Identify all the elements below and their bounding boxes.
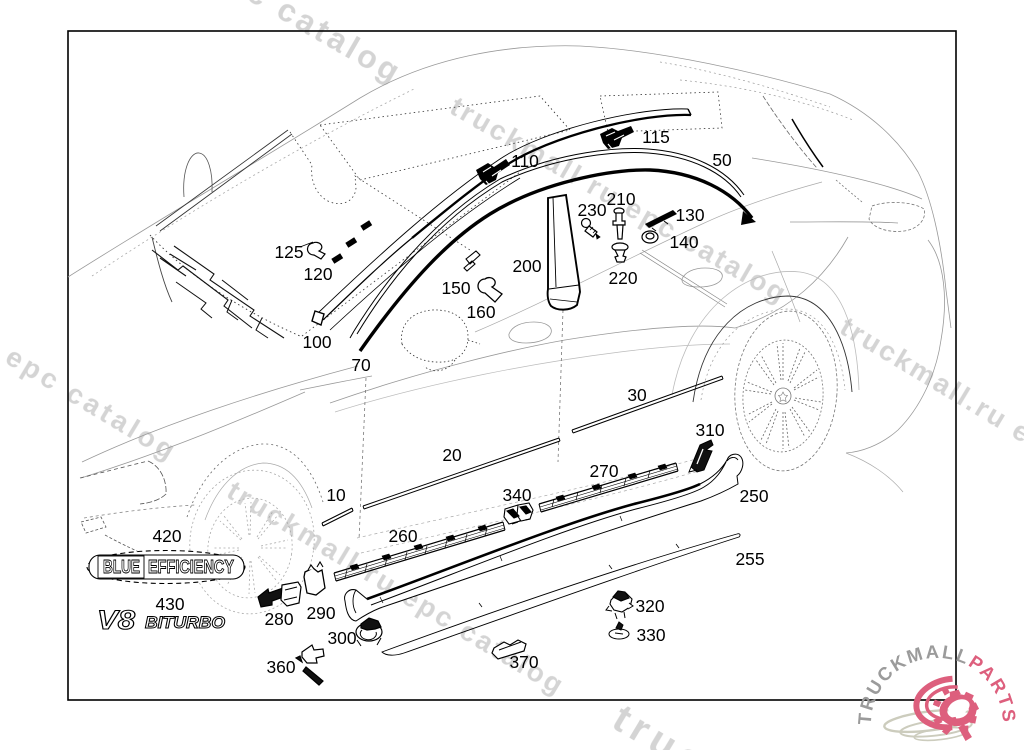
svg-text:V8: V8 [97, 605, 135, 635]
svg-text:70: 70 [351, 355, 370, 375]
svg-text:210: 210 [606, 189, 635, 209]
svg-text:340: 340 [502, 485, 531, 505]
svg-text:50: 50 [712, 150, 731, 170]
svg-text:20: 20 [442, 445, 461, 465]
svg-text:330: 330 [636, 625, 665, 645]
svg-text:110: 110 [511, 151, 539, 171]
svg-text:280: 280 [264, 609, 293, 629]
svg-text:250: 250 [739, 486, 768, 506]
svg-text:140: 140 [669, 232, 698, 252]
svg-text:125: 125 [274, 242, 303, 262]
svg-text:BITURBO: BITURBO [145, 614, 225, 632]
svg-text:430: 430 [155, 594, 184, 614]
svg-text:310: 310 [695, 420, 724, 440]
svg-text:150: 150 [441, 278, 470, 298]
svg-text:320: 320 [635, 596, 664, 616]
svg-text:260: 260 [388, 526, 417, 546]
svg-text:360: 360 [266, 657, 295, 677]
svg-text:255: 255 [735, 549, 764, 569]
svg-text:EFFICIENCY: EFFICIENCY [148, 557, 234, 577]
svg-text:115: 115 [642, 127, 670, 147]
svg-text:160: 160 [466, 302, 495, 322]
svg-text:100: 100 [302, 332, 331, 352]
svg-text:300: 300 [327, 628, 356, 648]
svg-text:420: 420 [152, 526, 181, 546]
svg-text:10: 10 [326, 485, 345, 505]
svg-text:370: 370 [509, 652, 538, 672]
svg-text:230: 230 [577, 200, 606, 220]
svg-text:BLUE: BLUE [103, 557, 140, 577]
svg-text:270: 270 [589, 461, 618, 481]
svg-text:30: 30 [627, 385, 646, 405]
svg-text:200: 200 [512, 256, 541, 276]
svg-text:120: 120 [303, 264, 332, 284]
svg-text:130: 130 [675, 205, 704, 225]
svg-text:220: 220 [608, 268, 637, 288]
svg-text:290: 290 [306, 603, 335, 623]
